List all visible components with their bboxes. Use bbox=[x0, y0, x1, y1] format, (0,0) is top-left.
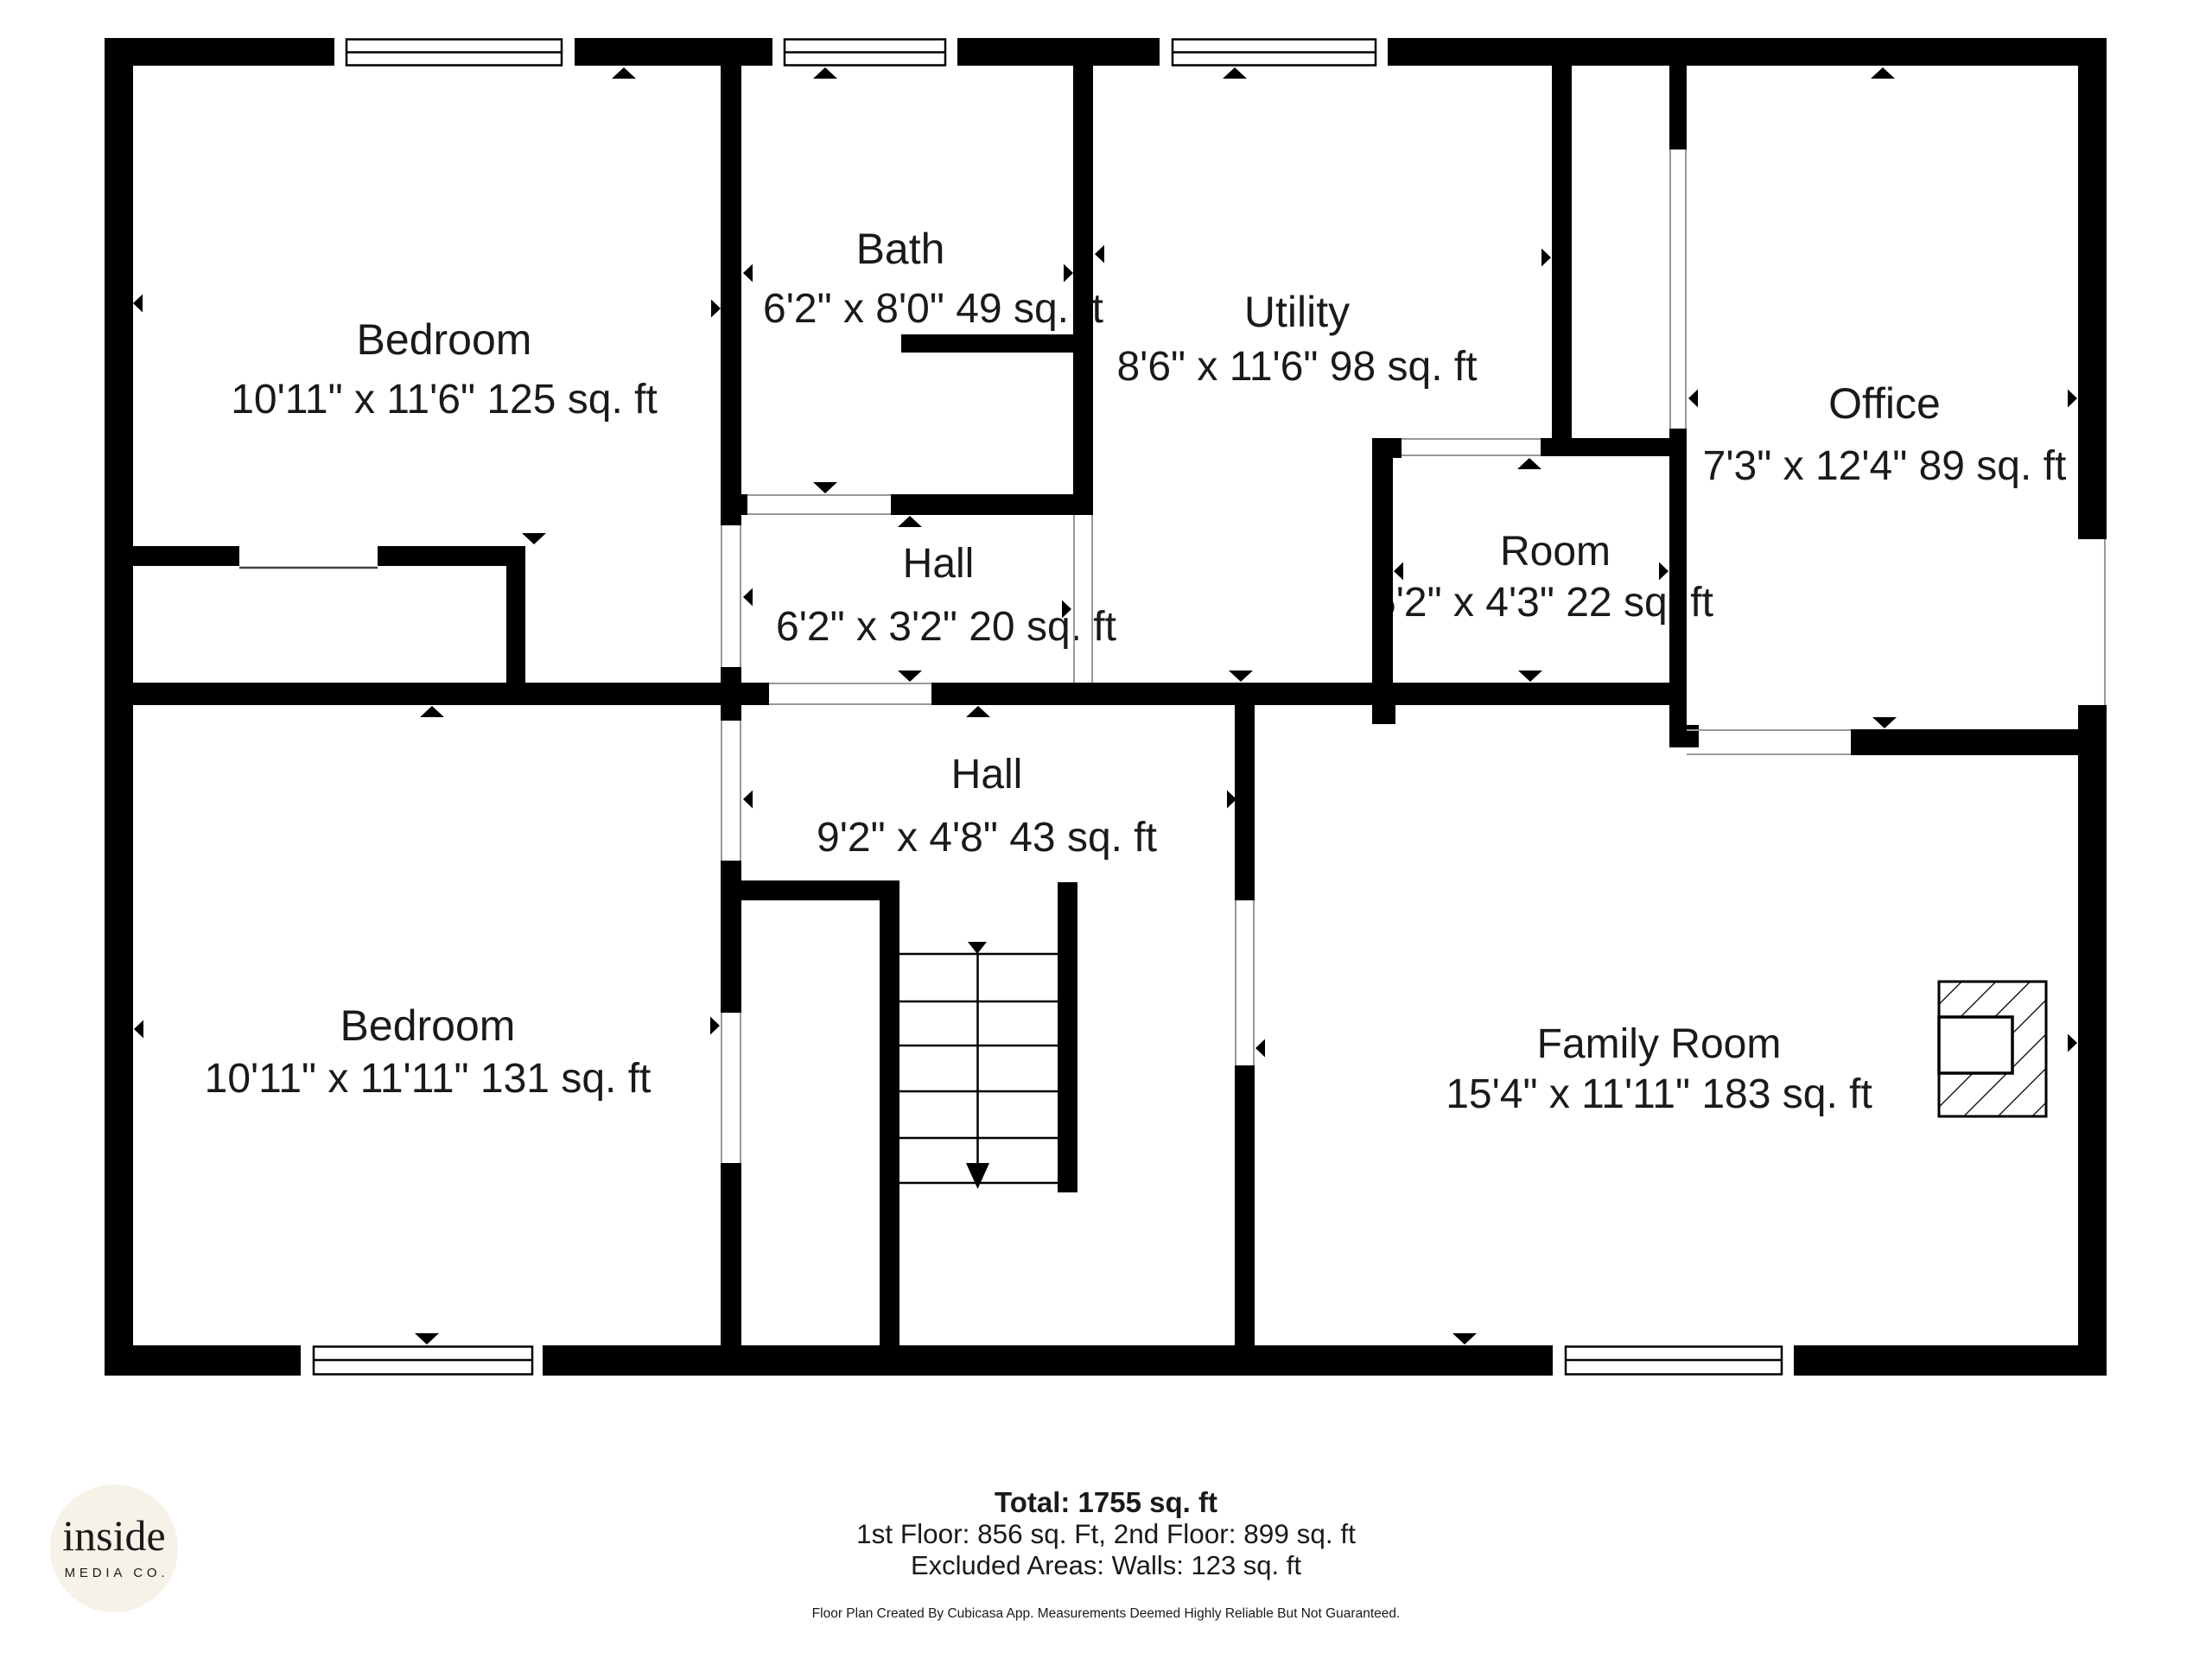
svg-text:Office: Office bbox=[1828, 379, 1941, 428]
svg-text:10'11" x 11'11" 131 sq. ft: 10'11" x 11'11" 131 sq. ft bbox=[205, 1056, 652, 1102]
svg-text:9'2" x 4'8" 43 sq. ft: 9'2" x 4'8" 43 sq. ft bbox=[817, 815, 1157, 861]
svg-text:1st Floor: 856 sq. Ft, 2nd Flo: 1st Floor: 856 sq. Ft, 2nd Floor: 899 sq… bbox=[856, 1518, 1356, 1549]
svg-text:5'2" x 4'3" 22 sq. ft: 5'2" x 4'3" 22 sq. ft bbox=[1373, 580, 1713, 626]
svg-text:15'4" x 11'11" 183 sq. ft: 15'4" x 11'11" 183 sq. ft bbox=[1446, 1071, 1872, 1117]
svg-text:7'3" x 12'4" 89 sq. ft: 7'3" x 12'4" 89 sq. ft bbox=[1703, 443, 2067, 489]
svg-text:Excluded Areas: Walls: 123 sq.: Excluded Areas: Walls: 123 sq. ft bbox=[911, 1550, 1301, 1580]
svg-text:6'2" x 8'0" 49 sq. ft: 6'2" x 8'0" 49 sq. ft bbox=[763, 286, 1103, 332]
svg-text:Hall: Hall bbox=[951, 752, 1023, 798]
svg-text:MEDIA CO.: MEDIA CO. bbox=[65, 1566, 169, 1580]
svg-text:Room: Room bbox=[1500, 529, 1611, 575]
svg-text:Bedroom: Bedroom bbox=[340, 1001, 516, 1050]
svg-text:Total: 1755 sq. ft: Total: 1755 sq. ft bbox=[995, 1486, 1217, 1518]
svg-text:Bedroom: Bedroom bbox=[357, 315, 532, 364]
svg-text:inside: inside bbox=[62, 1511, 165, 1560]
svg-text:Bath: Bath bbox=[856, 225, 945, 273]
svg-text:10'11" x 11'6" 125 sq. ft: 10'11" x 11'6" 125 sq. ft bbox=[231, 377, 658, 423]
svg-text:Floor Plan Created By Cubicasa: Floor Plan Created By Cubicasa App. Meas… bbox=[812, 1606, 1401, 1621]
svg-text:Family Room: Family Room bbox=[1537, 1021, 1782, 1067]
svg-text:Hall: Hall bbox=[903, 541, 975, 587]
svg-text:8'6" x 11'6" 98 sq. ft: 8'6" x 11'6" 98 sq. ft bbox=[1116, 344, 1477, 390]
svg-text:Utility: Utility bbox=[1244, 288, 1350, 336]
